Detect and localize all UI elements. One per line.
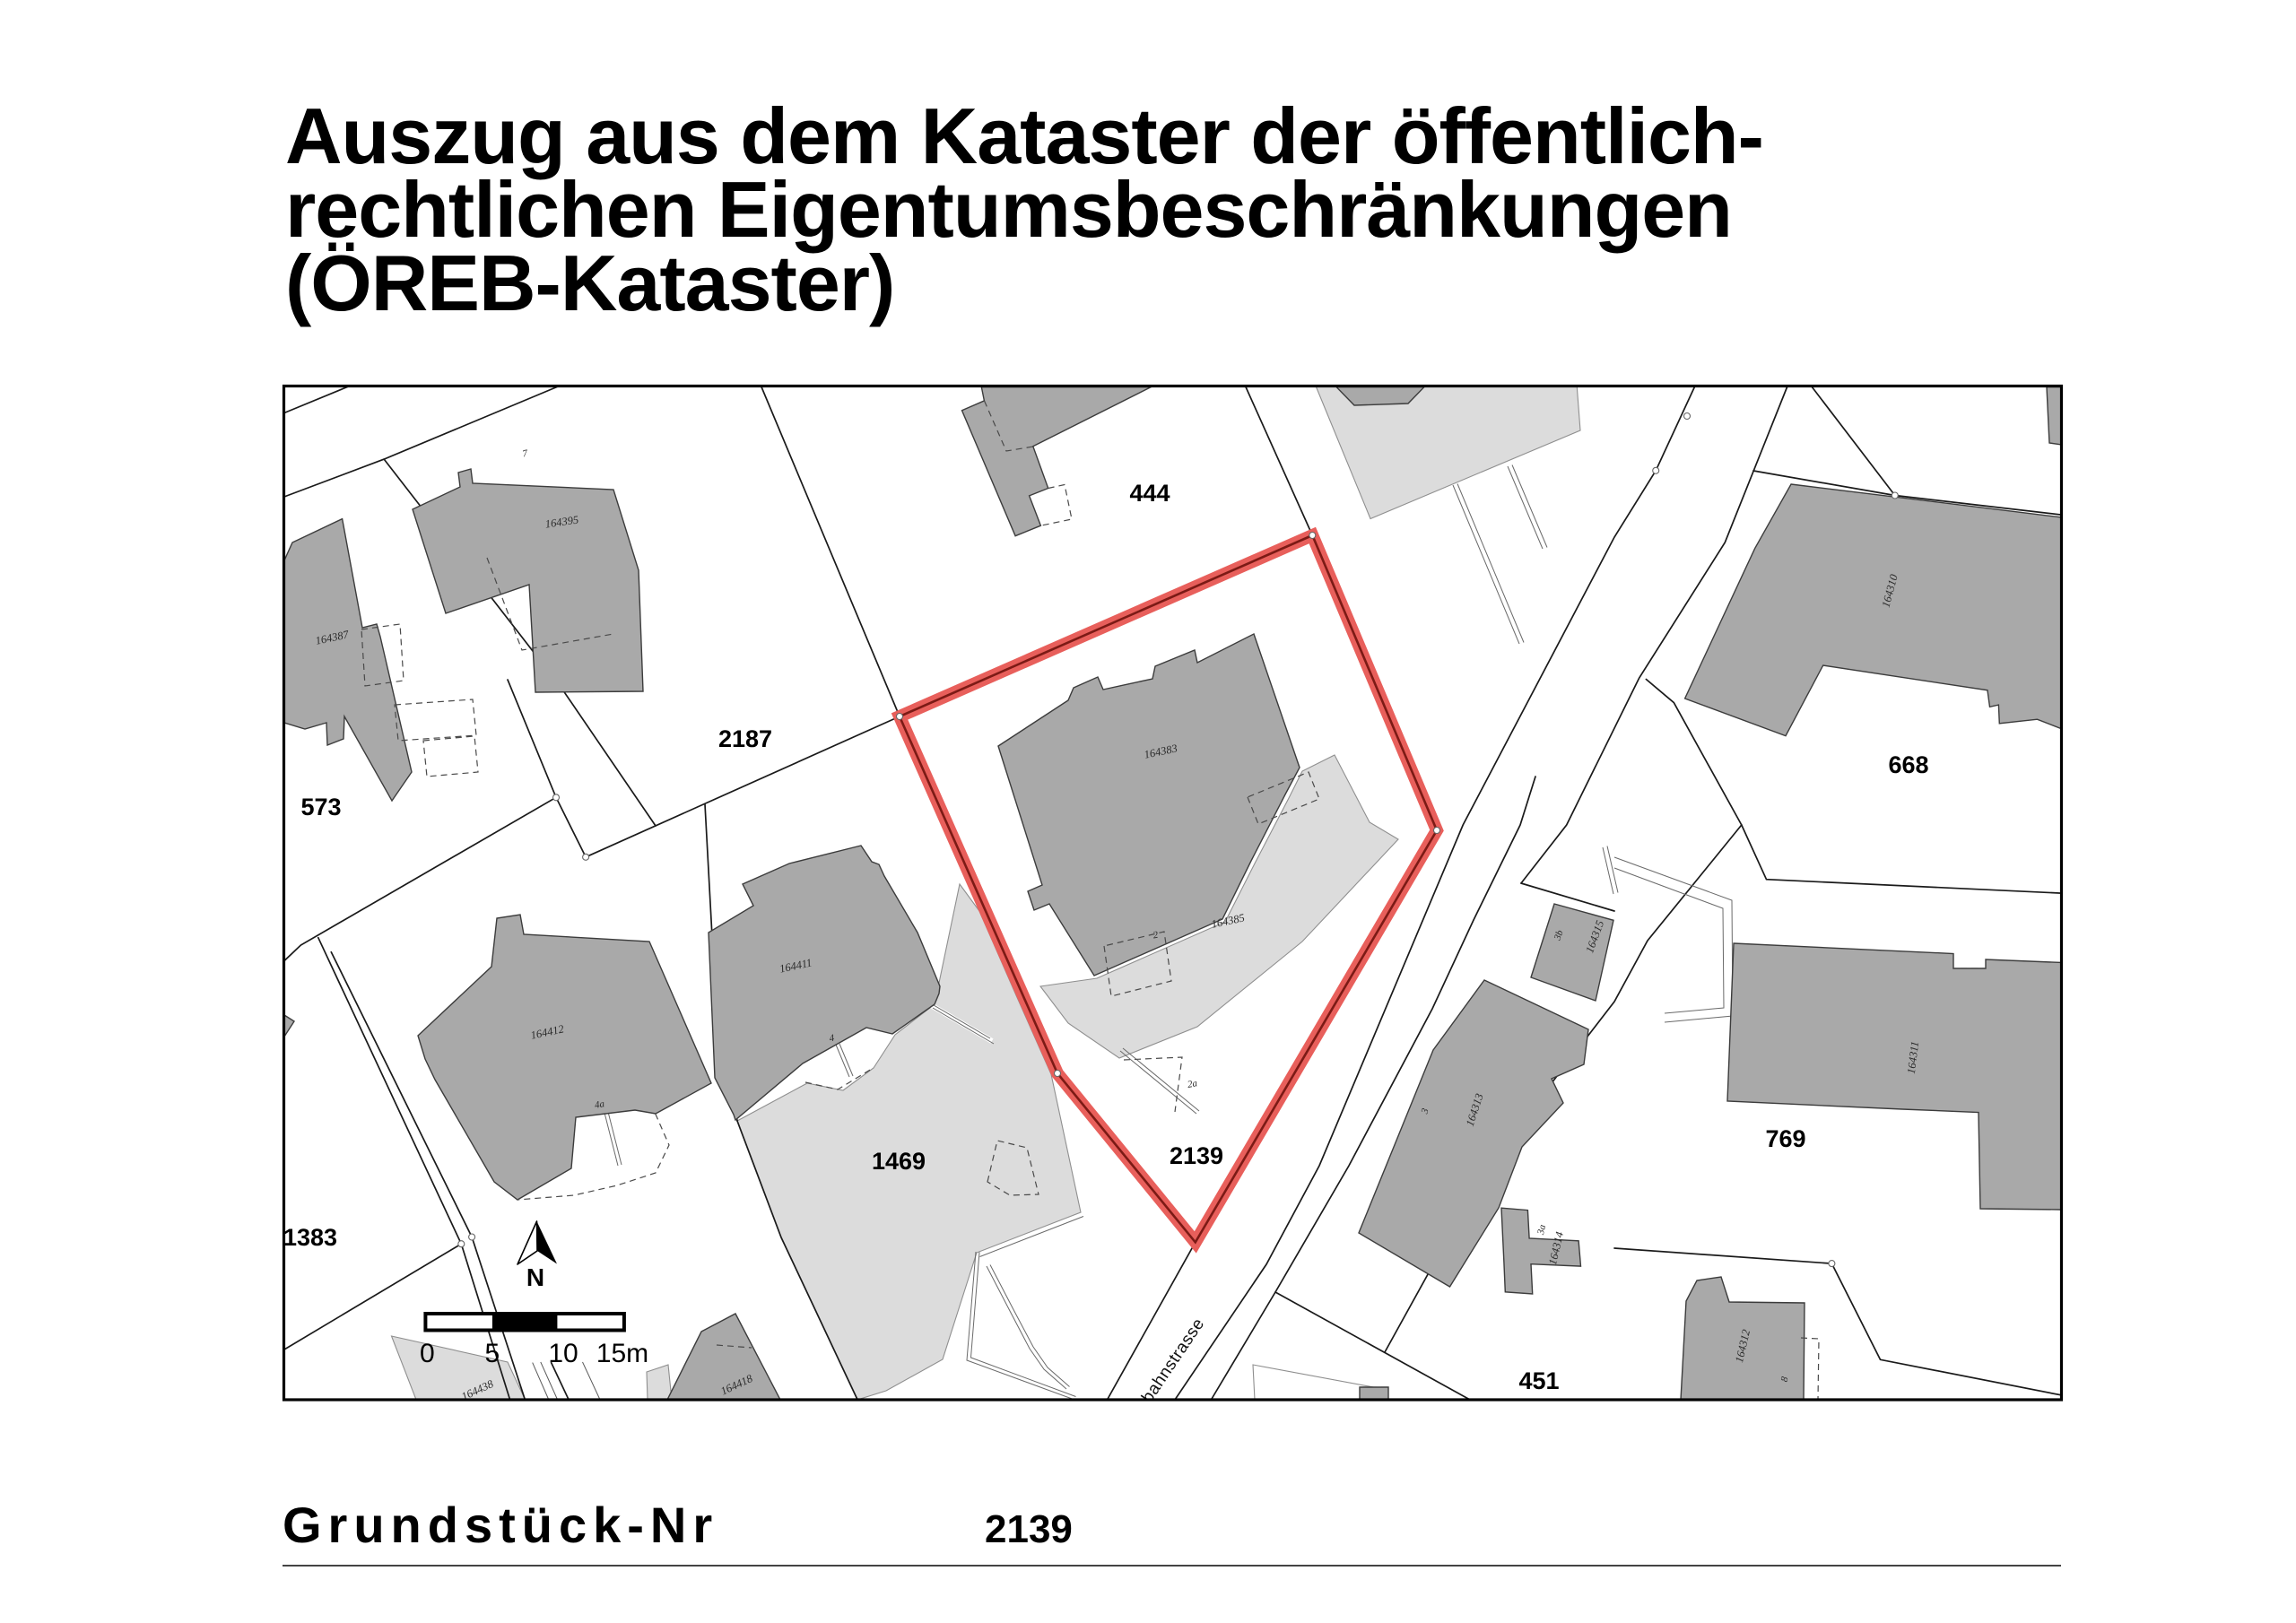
svg-text:N: N bbox=[526, 1263, 544, 1291]
svg-text:668: 668 bbox=[1888, 751, 1928, 778]
svg-text:(ÖREB-Kataster): (ÖREB-Kataster) bbox=[285, 239, 894, 327]
svg-text:0: 0 bbox=[420, 1339, 435, 1368]
svg-text:10: 10 bbox=[548, 1339, 578, 1368]
svg-text:573: 573 bbox=[300, 794, 341, 820]
svg-text:1469: 1469 bbox=[872, 1148, 926, 1175]
svg-text:1383: 1383 bbox=[283, 1224, 337, 1251]
svg-text:Grundstück-Nr: Grundstück-Nr bbox=[283, 1497, 718, 1553]
svg-text:451: 451 bbox=[1518, 1367, 1559, 1394]
svg-text:2139: 2139 bbox=[985, 1507, 1073, 1551]
svg-text:2187: 2187 bbox=[718, 725, 772, 752]
svg-text:769: 769 bbox=[1765, 1125, 1805, 1152]
svg-text:2139: 2139 bbox=[1170, 1142, 1223, 1169]
svg-text:444: 444 bbox=[1129, 480, 1170, 507]
svg-text:15m: 15m bbox=[596, 1339, 648, 1368]
svg-text:5: 5 bbox=[485, 1339, 500, 1368]
